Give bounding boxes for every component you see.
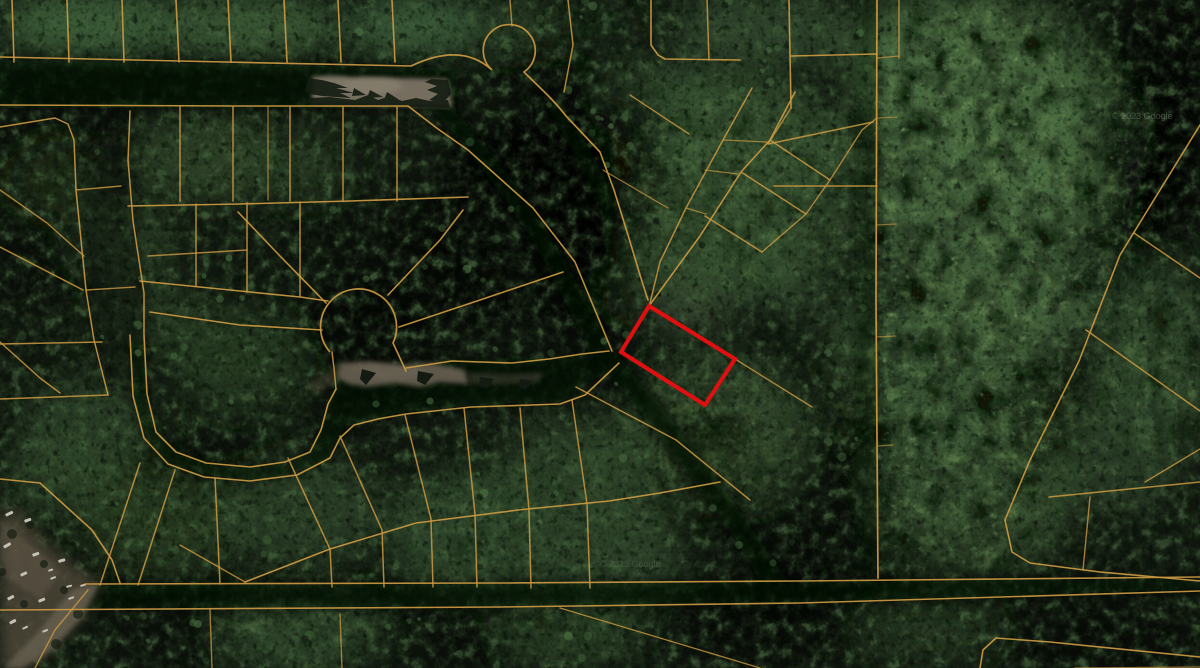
svg-text:© 2023 Google: © 2023 Google bbox=[1112, 111, 1173, 121]
svg-text:© 2023 Google: © 2023 Google bbox=[600, 559, 661, 569]
